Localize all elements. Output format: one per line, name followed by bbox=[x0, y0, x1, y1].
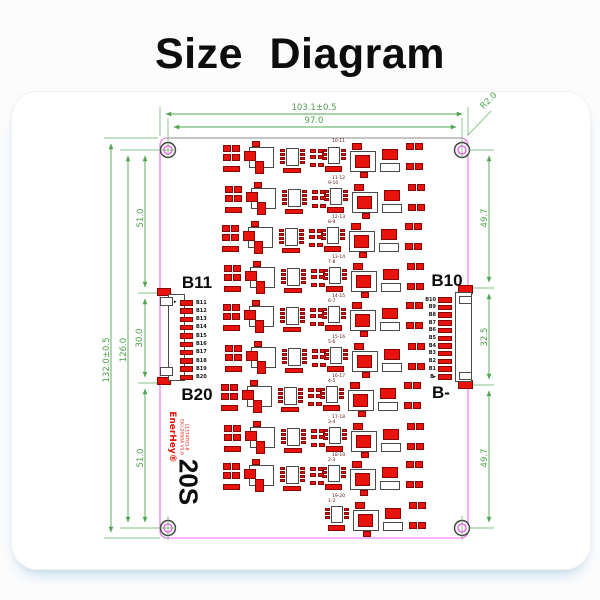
smd-pad bbox=[354, 235, 369, 248]
smd-pad bbox=[416, 263, 424, 270]
smd-pad bbox=[223, 154, 231, 161]
dim-width-holes: 97.0 bbox=[305, 116, 324, 126]
left-pin-label: B13 bbox=[196, 317, 207, 322]
smd-pad bbox=[320, 392, 325, 395]
smd-pad bbox=[361, 292, 369, 298]
smd-pad bbox=[385, 508, 401, 519]
smd-pad bbox=[298, 392, 303, 395]
smd-pad bbox=[278, 396, 283, 399]
smd-pad bbox=[299, 229, 304, 232]
smd-pad bbox=[254, 241, 263, 254]
ic-footprint bbox=[327, 227, 339, 244]
ic-footprint bbox=[380, 322, 400, 331]
smd-pad bbox=[234, 195, 242, 202]
smd-pad bbox=[279, 229, 284, 232]
smd-pad bbox=[382, 149, 398, 160]
smd-pad bbox=[318, 163, 324, 167]
smd-pad bbox=[318, 481, 324, 485]
smd-pad bbox=[324, 198, 329, 201]
smd-pad bbox=[415, 143, 423, 150]
right-pin-pad bbox=[438, 343, 452, 349]
smd-pad bbox=[251, 221, 259, 227]
smd-pad bbox=[340, 237, 345, 240]
smd-pad bbox=[302, 194, 307, 197]
smd-pad bbox=[417, 184, 425, 191]
smd-pad bbox=[230, 393, 238, 400]
smd-pad bbox=[341, 149, 346, 152]
smd-pad bbox=[222, 234, 230, 241]
ic-footprint bbox=[329, 267, 341, 284]
smd-pad bbox=[418, 522, 426, 529]
smd-pad bbox=[223, 484, 240, 490]
left-connector-notch bbox=[160, 297, 173, 306]
smd-pad bbox=[282, 357, 287, 360]
smd-pad bbox=[284, 448, 302, 453]
smd-pad bbox=[300, 467, 305, 470]
dim-height-holes: 126.0 bbox=[119, 338, 129, 362]
smd-pad bbox=[324, 190, 329, 193]
smd-pad bbox=[407, 283, 415, 290]
smd-pad bbox=[343, 357, 348, 360]
smd-pad bbox=[252, 141, 260, 147]
smd-pad bbox=[323, 433, 328, 436]
smd-pad bbox=[231, 234, 239, 241]
smd-pad bbox=[324, 246, 341, 252]
smd-component-field: 10-1111-129-1012-138-913-147-814-156-715… bbox=[222, 139, 424, 537]
right-connector-notch bbox=[459, 296, 472, 304]
smd-pad bbox=[322, 467, 327, 470]
smd-pad bbox=[280, 471, 285, 474]
smd-pad bbox=[302, 190, 307, 193]
smd-pad bbox=[325, 325, 342, 331]
smd-pad bbox=[298, 396, 303, 399]
cell-pair-label: 2-3 bbox=[328, 459, 335, 464]
smd-pad bbox=[282, 349, 287, 352]
smd-pad bbox=[416, 283, 424, 290]
smd-pad bbox=[384, 349, 400, 360]
left-pin-pad bbox=[180, 366, 193, 372]
ic-footprint bbox=[286, 307, 299, 325]
smd-pad bbox=[232, 313, 240, 320]
smd-pad bbox=[342, 277, 347, 280]
smd-pad bbox=[328, 525, 345, 531]
smd-pad bbox=[257, 361, 266, 374]
smd-pad bbox=[300, 471, 305, 474]
smd-pad bbox=[344, 508, 349, 511]
smd-pad bbox=[355, 155, 370, 168]
smd-pad bbox=[323, 405, 340, 411]
smd-pad bbox=[302, 357, 307, 360]
smd-pad bbox=[233, 434, 241, 441]
smd-pad bbox=[232, 145, 240, 152]
smd-pad bbox=[407, 443, 415, 450]
ic-footprint bbox=[286, 466, 299, 484]
smd-pad bbox=[352, 302, 362, 309]
smd-pad bbox=[363, 531, 371, 537]
right-connector-notch bbox=[459, 372, 472, 380]
smd-pad bbox=[326, 446, 343, 452]
smd-pad bbox=[278, 392, 283, 395]
dim-right-connector: 32.5 bbox=[480, 328, 490, 347]
smd-pad bbox=[300, 316, 305, 319]
smd-pad bbox=[415, 322, 423, 329]
cell-pair-label: 1-2 bbox=[328, 500, 335, 505]
smd-pad bbox=[361, 452, 369, 458]
smd-pad bbox=[322, 308, 327, 311]
smd-pad bbox=[299, 241, 304, 244]
smd-pad bbox=[300, 320, 305, 323]
smd-pad bbox=[343, 194, 348, 197]
smd-pad bbox=[404, 402, 412, 409]
smd-pad bbox=[325, 166, 342, 172]
smd-pad bbox=[281, 273, 286, 276]
smd-pad bbox=[415, 302, 423, 309]
smd-pad bbox=[362, 372, 370, 378]
ic-footprint bbox=[383, 522, 403, 531]
smd-pad bbox=[342, 429, 347, 432]
smd-pad bbox=[300, 161, 305, 164]
smd-pad bbox=[283, 486, 301, 491]
smd-pad bbox=[221, 384, 229, 391]
smd-pad bbox=[312, 190, 318, 194]
smd-pad bbox=[300, 308, 305, 311]
smd-pad bbox=[232, 463, 240, 470]
smd-pad bbox=[231, 225, 239, 232]
smd-pad bbox=[224, 425, 232, 432]
left-pin-label: B14 bbox=[196, 325, 207, 330]
smd-pad bbox=[382, 308, 398, 319]
smd-pad bbox=[221, 393, 229, 400]
smd-pad bbox=[234, 186, 242, 193]
smd-pad bbox=[280, 475, 285, 478]
smd-pad bbox=[244, 469, 256, 479]
right-pin-pad bbox=[438, 320, 452, 326]
smd-pad bbox=[250, 380, 258, 386]
ic-footprint bbox=[330, 188, 342, 205]
smd-pad bbox=[324, 349, 329, 352]
smd-pad bbox=[353, 394, 368, 407]
smd-pad bbox=[244, 151, 256, 161]
right-pin-pad bbox=[438, 312, 452, 318]
smd-pad bbox=[353, 263, 363, 270]
smd-pad bbox=[222, 246, 239, 252]
smd-pad bbox=[406, 461, 414, 468]
pin1-marker-icon: ► bbox=[173, 300, 177, 305]
cell-pair-label: 9-10 bbox=[328, 182, 338, 187]
smd-pad bbox=[234, 345, 242, 352]
ic-footprint bbox=[326, 386, 338, 403]
smd-pad bbox=[320, 363, 326, 367]
smd-pad bbox=[280, 320, 285, 323]
smd-pad bbox=[301, 277, 306, 280]
smd-pad bbox=[341, 312, 346, 315]
ic-footprint bbox=[382, 204, 402, 213]
cell-pair-label: 4-5 bbox=[328, 380, 335, 385]
ic-footprint bbox=[381, 443, 401, 452]
right-pin-pad bbox=[438, 366, 452, 372]
smd-pad bbox=[302, 202, 307, 205]
smd-pad bbox=[278, 388, 283, 391]
smd-pad bbox=[300, 312, 305, 315]
dim-height-outer: 132.0±0.5 bbox=[102, 338, 112, 383]
smd-pad bbox=[326, 286, 343, 292]
smd-pad bbox=[252, 300, 260, 306]
smd-pad bbox=[341, 153, 346, 156]
smd-pad bbox=[343, 190, 348, 193]
ic-footprint bbox=[286, 148, 299, 166]
smd-pad bbox=[312, 363, 318, 367]
smd-pad bbox=[323, 277, 328, 280]
smd-pad bbox=[302, 353, 307, 356]
smd-pad bbox=[224, 286, 241, 292]
ic-footprint bbox=[328, 306, 340, 323]
smd-pad bbox=[282, 248, 300, 253]
smd-pad bbox=[358, 411, 366, 417]
ic-footprint bbox=[330, 347, 342, 364]
smd-pad bbox=[242, 390, 254, 400]
ic-footprint bbox=[382, 363, 402, 372]
smd-pad bbox=[327, 366, 344, 372]
left-pin-pad bbox=[180, 358, 193, 364]
smd-pad bbox=[282, 361, 287, 364]
smd-pad bbox=[301, 441, 306, 444]
smd-pad bbox=[254, 341, 262, 347]
ic-footprint bbox=[287, 428, 300, 446]
smd-pad bbox=[233, 265, 241, 272]
smd-pad bbox=[311, 435, 317, 439]
smd-pad bbox=[355, 314, 370, 327]
dim-right-bottom: 49.7 bbox=[480, 449, 490, 468]
smd-pad bbox=[414, 223, 422, 230]
smd-pad bbox=[341, 475, 346, 478]
right-pin-pad bbox=[438, 359, 452, 365]
smd-pad bbox=[282, 194, 287, 197]
smd-pad bbox=[413, 382, 421, 389]
smd-pad bbox=[360, 490, 368, 496]
smd-pad bbox=[320, 388, 325, 391]
smd-pad bbox=[311, 275, 317, 279]
dim-width-outer: 103.1±0.5 bbox=[292, 103, 337, 113]
smd-pad bbox=[225, 345, 233, 352]
smd-pad bbox=[407, 263, 415, 270]
smd-pad bbox=[301, 437, 306, 440]
smd-pad bbox=[406, 481, 414, 488]
smd-pad bbox=[358, 514, 373, 527]
cell-pair-label: 3-4 bbox=[328, 421, 335, 426]
right-pin-pad bbox=[438, 328, 452, 334]
smd-pad bbox=[322, 312, 327, 315]
smd-pad bbox=[325, 508, 330, 511]
smd-pad bbox=[342, 437, 347, 440]
smd-pad bbox=[322, 149, 327, 152]
dim-left-bottom: 51.0 bbox=[136, 449, 146, 468]
right-pin-pad bbox=[438, 351, 452, 357]
smd-pad bbox=[299, 237, 304, 240]
smd-pad bbox=[408, 204, 416, 211]
left-pin-pad bbox=[180, 300, 193, 306]
smd-pad bbox=[323, 269, 328, 272]
smd-pad bbox=[408, 184, 416, 191]
smd-pad bbox=[281, 281, 286, 284]
smd-pad bbox=[280, 467, 285, 470]
smd-pad bbox=[310, 473, 316, 477]
smd-pad bbox=[224, 265, 232, 272]
smd-pad bbox=[311, 443, 317, 447]
smd-pad bbox=[324, 357, 329, 360]
left-pin-label: B11 bbox=[196, 301, 207, 306]
smd-pad bbox=[382, 467, 398, 478]
smd-pad bbox=[321, 237, 326, 240]
smd-pad bbox=[354, 343, 364, 350]
smd-pad bbox=[225, 195, 233, 202]
smd-pad bbox=[406, 302, 414, 309]
smd-pad bbox=[252, 459, 260, 465]
left-pin-label: B17 bbox=[196, 350, 207, 355]
smd-pad bbox=[408, 363, 416, 370]
smd-pad bbox=[415, 461, 423, 468]
smd-pad bbox=[301, 281, 306, 284]
smd-pad bbox=[310, 308, 316, 312]
smd-pad bbox=[225, 354, 233, 361]
smd-pad bbox=[225, 366, 242, 372]
left-pin-label: B18 bbox=[196, 359, 207, 364]
cell-pair-label: 5-6 bbox=[328, 341, 335, 346]
smd-pad bbox=[302, 361, 307, 364]
dim-left-connector: 30.0 bbox=[135, 329, 145, 348]
ic-footprint bbox=[380, 163, 400, 172]
smd-pad bbox=[341, 157, 346, 160]
smd-pad bbox=[325, 484, 342, 490]
cell-pair-label: 10-11 bbox=[332, 140, 345, 145]
smd-pad bbox=[383, 429, 399, 440]
smd-pad bbox=[282, 353, 287, 356]
smd-pad bbox=[281, 269, 286, 272]
smd-pad bbox=[234, 354, 242, 361]
smd-pad bbox=[352, 461, 362, 468]
smd-pad bbox=[319, 283, 325, 287]
smd-pad bbox=[300, 149, 305, 152]
smd-pad bbox=[232, 304, 240, 311]
smd-pad bbox=[357, 196, 372, 209]
left-pin-pad bbox=[180, 317, 193, 323]
smd-pad bbox=[311, 269, 317, 273]
smd-pad bbox=[281, 429, 286, 432]
smd-pad bbox=[222, 225, 230, 232]
ic-footprint bbox=[284, 387, 297, 405]
smd-pad bbox=[362, 213, 370, 219]
ic-footprint bbox=[379, 243, 399, 252]
smd-pad bbox=[224, 274, 232, 281]
smd-pad bbox=[280, 153, 285, 156]
smd-pad bbox=[223, 145, 231, 152]
smd-pad bbox=[223, 463, 231, 470]
smd-pad bbox=[356, 435, 371, 448]
left-connector-bottom-label: B20 bbox=[181, 385, 212, 405]
smd-pad bbox=[302, 198, 307, 201]
smd-pad bbox=[309, 243, 315, 247]
smd-pad bbox=[282, 190, 287, 193]
smd-pad bbox=[415, 481, 423, 488]
smd-pad bbox=[341, 467, 346, 470]
smd-pad bbox=[413, 402, 421, 409]
ic-footprint bbox=[331, 506, 343, 523]
smd-pad bbox=[356, 275, 371, 288]
ic-footprint bbox=[381, 283, 401, 292]
smd-pad bbox=[409, 522, 417, 529]
smd-pad bbox=[223, 313, 231, 320]
smd-pad bbox=[324, 353, 329, 356]
smd-pad bbox=[339, 388, 344, 391]
smd-pad bbox=[344, 516, 349, 519]
smd-pad bbox=[404, 382, 412, 389]
smd-pad bbox=[233, 425, 241, 432]
smd-pad bbox=[312, 349, 318, 353]
smd-pad bbox=[323, 437, 328, 440]
smd-pad bbox=[325, 516, 330, 519]
smd-pad bbox=[221, 405, 238, 411]
smd-pad bbox=[308, 388, 314, 392]
smd-pad bbox=[223, 304, 231, 311]
smd-pad bbox=[318, 322, 324, 326]
smd-pad bbox=[359, 252, 367, 258]
smd-pad bbox=[223, 166, 240, 172]
smd-pad bbox=[300, 153, 305, 156]
smd-pad bbox=[310, 314, 316, 318]
smd-pad bbox=[223, 472, 231, 479]
smd-pad bbox=[223, 325, 240, 331]
smd-pad bbox=[281, 277, 286, 280]
smd-pad bbox=[357, 355, 372, 368]
smd-pad bbox=[354, 184, 364, 191]
smd-pad bbox=[224, 434, 232, 441]
smd-pad bbox=[282, 198, 287, 201]
smd-pad bbox=[300, 475, 305, 478]
left-pin-label: B20 bbox=[196, 375, 207, 380]
smd-pad bbox=[341, 316, 346, 319]
smd-pad bbox=[312, 204, 318, 208]
smd-pad bbox=[280, 479, 285, 482]
smd-pad bbox=[280, 312, 285, 315]
smd-pad bbox=[284, 288, 302, 293]
smd-pad bbox=[299, 233, 304, 236]
left-pin-pad bbox=[180, 308, 193, 314]
smd-pad bbox=[352, 143, 362, 150]
right-pin-pad bbox=[438, 297, 452, 303]
smd-pad bbox=[342, 269, 347, 272]
smd-pad bbox=[283, 327, 301, 332]
smd-pad bbox=[232, 154, 240, 161]
smd-pad bbox=[316, 402, 322, 406]
smd-pad bbox=[280, 308, 285, 311]
smd-pad bbox=[407, 423, 415, 430]
smd-pad bbox=[312, 355, 318, 359]
smd-pad bbox=[255, 320, 264, 333]
silkscreen-serial: L1374T03-8 bbox=[184, 424, 189, 451]
smd-pad bbox=[408, 343, 416, 350]
smd-pad bbox=[301, 269, 306, 272]
smd-pad bbox=[322, 471, 327, 474]
smd-pad bbox=[342, 433, 347, 436]
smd-pad bbox=[406, 322, 414, 329]
smd-pad bbox=[409, 502, 417, 509]
smd-pad bbox=[283, 168, 301, 173]
smd-pad bbox=[323, 273, 328, 276]
smd-pad bbox=[339, 392, 344, 395]
smd-pad bbox=[416, 423, 424, 430]
smd-pad bbox=[381, 229, 397, 240]
size-diagram-page: Size Diagram bbox=[0, 0, 600, 600]
smd-pad bbox=[350, 382, 360, 389]
